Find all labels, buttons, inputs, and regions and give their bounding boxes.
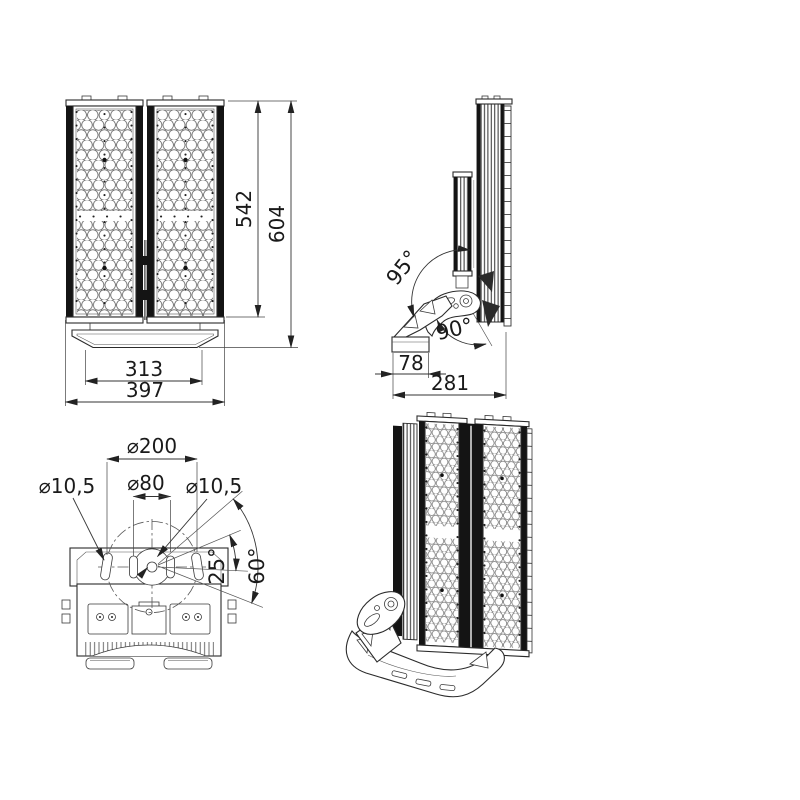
dim-outer-height: 604 xyxy=(265,205,289,243)
foot-right xyxy=(164,658,212,669)
lens-edge xyxy=(504,106,511,326)
side-view: 95° 90° 78 281 xyxy=(375,96,512,399)
dim-left-hole: ⌀10,5 xyxy=(39,474,96,498)
iso-modules xyxy=(393,411,532,657)
dim-right-hole: ⌀10,5 xyxy=(186,474,243,498)
front-view: 542 604 313 397 xyxy=(66,96,299,406)
driver-plate-right xyxy=(170,604,210,634)
dim-center-hole: ⌀80 xyxy=(127,471,165,495)
dim-inner-height: 542 xyxy=(232,190,256,228)
front-bracket xyxy=(72,323,218,348)
angle-large: 60° xyxy=(245,547,269,584)
foot-left xyxy=(86,658,134,669)
dim-bolt-circle: ⌀200 xyxy=(127,434,177,458)
angle-small: 25° xyxy=(205,547,229,584)
drawing-page: 542 604 313 397 xyxy=(0,0,800,800)
dim-outer-width: 397 xyxy=(126,378,164,402)
iso-view xyxy=(346,411,532,697)
technical-drawing: 542 604 313 397 xyxy=(0,0,800,800)
dim-base-width: 78 xyxy=(398,351,423,375)
bottom-view: 25° 60° ⌀200 ⌀80 ⌀10,5 ⌀10,5 xyxy=(39,434,269,669)
dim-depth: 281 xyxy=(431,371,469,395)
front-module-right xyxy=(147,100,224,323)
side-heatsink-short xyxy=(453,172,474,288)
front-top-tabs xyxy=(82,96,208,100)
front-module-left xyxy=(66,100,143,323)
angle-tilt-up: 95° xyxy=(382,246,424,290)
side-heatsink-tall xyxy=(476,99,512,326)
driver-plate-left xyxy=(88,604,128,634)
